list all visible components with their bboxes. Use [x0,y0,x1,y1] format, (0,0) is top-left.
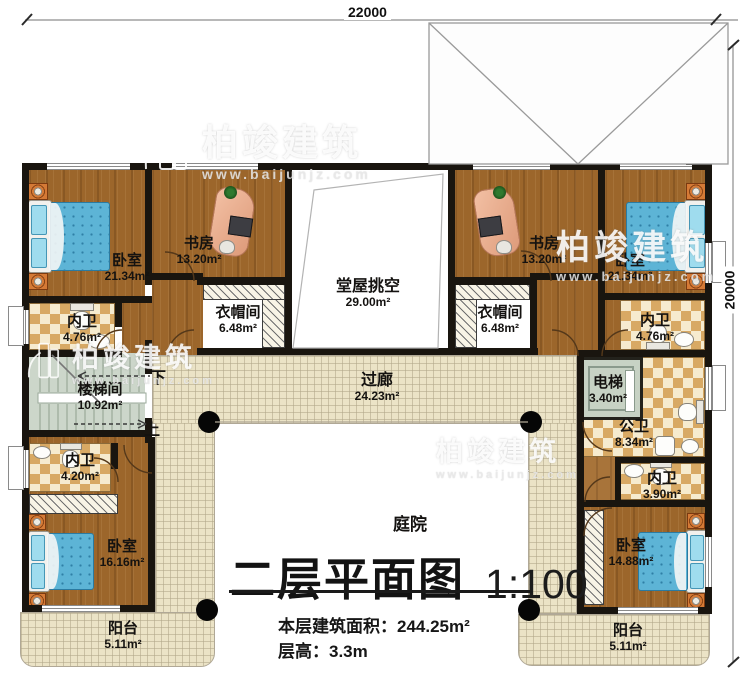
toilet-tank [696,400,704,424]
room-label-bath-mr: 内卫 3.90m² [643,471,681,501]
bedroom-bl-wardrobe [29,494,118,514]
sink [681,439,699,454]
window [620,163,692,170]
bed-sheet [672,203,687,270]
bed-pillow [31,238,47,268]
wall [22,350,122,357]
wall [598,300,605,357]
stair-down-label: 下 [150,364,166,388]
wall [598,293,712,300]
column [196,599,218,621]
potted-plant [493,186,506,199]
column [520,411,542,433]
page-title: 二层平面图 [230,543,465,608]
window [47,163,130,170]
dimension-top: 22000 [344,4,391,20]
window [473,163,550,170]
wall [448,348,538,355]
room-label-balcony-l: 阳台 5.11m² [104,621,141,651]
wall [197,348,292,355]
wall [148,437,155,612]
desk-chair [219,240,235,254]
bed-pillow [31,563,45,589]
window [705,367,712,410]
toilet [678,403,697,421]
room-label-bath-ml: 内卫 4.20m² [61,453,99,483]
wall [115,303,122,327]
wall [197,277,285,285]
potted-plant [224,186,237,199]
bed-pillow [689,205,705,235]
cloak-r-wardrobe-top [455,284,530,300]
cloak-l-wardrobe-side [262,299,285,348]
desk-chair [496,240,512,254]
floor-plan: 22000 20000 卧室 21.34m² 书房 13.20m² 堂屋挑空 2… [0,0,750,679]
toilet-tank [60,443,82,450]
walkway-left-floor [155,423,215,613]
sink [624,464,644,478]
room-label-hall-void: 堂屋挑空 29.00m² [336,278,400,309]
title-underline [229,590,532,593]
building-logo-icon [390,433,428,479]
room-label-cloak-l: 衣帽间 6.48m² [215,305,260,335]
nightstand [686,273,706,290]
nightstand [687,513,705,529]
room-label-bedroom-br: 卧室 14.88m² [609,538,654,568]
sink [33,446,51,459]
wall [448,163,455,355]
floor-height-line: 层高：3.3m [278,637,368,662]
dimension-right: 20000 [721,267,737,314]
window-sill [8,306,24,346]
room-label-elevator: 电梯 3.40m² [589,375,627,405]
room-label-bath-tl: 内卫 4.76m² [63,314,101,344]
wall [111,443,118,469]
shower-basin [655,436,675,456]
room-label-bedroom-tr: 卧室 21.34m² [608,253,653,283]
room-label-study-l: 书房 13.20m² [177,236,222,266]
wall [615,457,712,463]
computer-monitor [478,215,503,237]
nightstand [28,514,46,530]
wall [530,273,605,280]
wall [22,163,29,612]
wall [615,457,621,502]
roof-chimney [686,148,708,165]
stair-up-label: 上 [144,416,160,440]
room-label-cloak-r: 衣帽间 6.48m² [477,305,522,335]
room-label-corridor: 过廊 24.23m² [355,372,400,403]
bed-sheet [674,533,686,590]
wall [285,348,455,355]
nightstand [28,183,48,200]
room-label-bath-tr: 内卫 4.76m² [636,313,674,343]
wall [22,430,152,437]
toilet-tank [70,303,94,311]
wall [152,273,203,280]
window [172,163,258,170]
room-label-bedroom-tl: 卧室 21.34m² [105,253,150,283]
column [198,411,220,433]
room-label-study-r: 书房 13.20m² [522,236,567,266]
drawing-scale: 1:100 [485,561,588,608]
cloak-l-wardrobe-top [203,284,285,300]
sink [674,332,694,347]
window-sill [8,446,24,490]
passage-r-floor [605,300,620,350]
room-label-public-bath: 公卫 8.34m² [615,419,653,449]
bed-pillow [31,535,45,561]
window [42,605,120,612]
nightstand [28,273,48,290]
wall [530,277,537,355]
room-label-bedroom-bl: 卧室 16.16m² [100,539,145,569]
hall-void-floor [292,170,448,348]
wall [22,296,152,303]
room-label-stairwell: 楼梯间 10.92m² [77,382,122,412]
cloak-r-wardrobe-side [455,299,477,348]
floor-area-line: 本层建筑面积：244.25m² [278,612,470,637]
wall [285,163,292,355]
bed-pillow [690,563,704,589]
wall [577,350,712,357]
room-label-balcony-r: 阳台 5.11m² [609,623,646,653]
window [618,607,698,614]
computer-monitor [228,215,253,237]
bed-pillow [689,238,705,268]
wall [448,277,537,285]
nightstand [686,183,706,200]
window [705,243,712,283]
window-sill [712,365,726,411]
bed-pillow [31,205,47,235]
window [705,537,712,587]
bed-pillow [690,535,704,561]
courtyard-label: 庭院 [393,510,427,535]
drawing-title: 二层平面图 1:100 [230,543,588,608]
